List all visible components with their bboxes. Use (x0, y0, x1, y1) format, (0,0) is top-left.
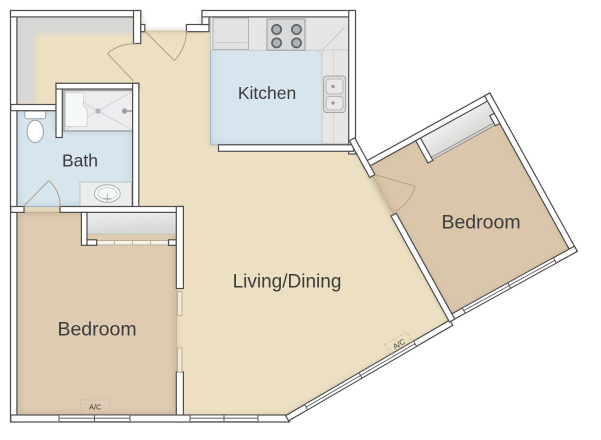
svg-text:Bedroom: Bedroom (441, 212, 520, 234)
svg-text:Living/Dining: Living/Dining (233, 272, 342, 293)
svg-text:Bath: Bath (62, 151, 98, 171)
svg-text:Bedroom: Bedroom (57, 319, 136, 341)
svg-text:A/C: A/C (89, 403, 102, 412)
svg-text:Kitchen: Kitchen (238, 83, 296, 103)
